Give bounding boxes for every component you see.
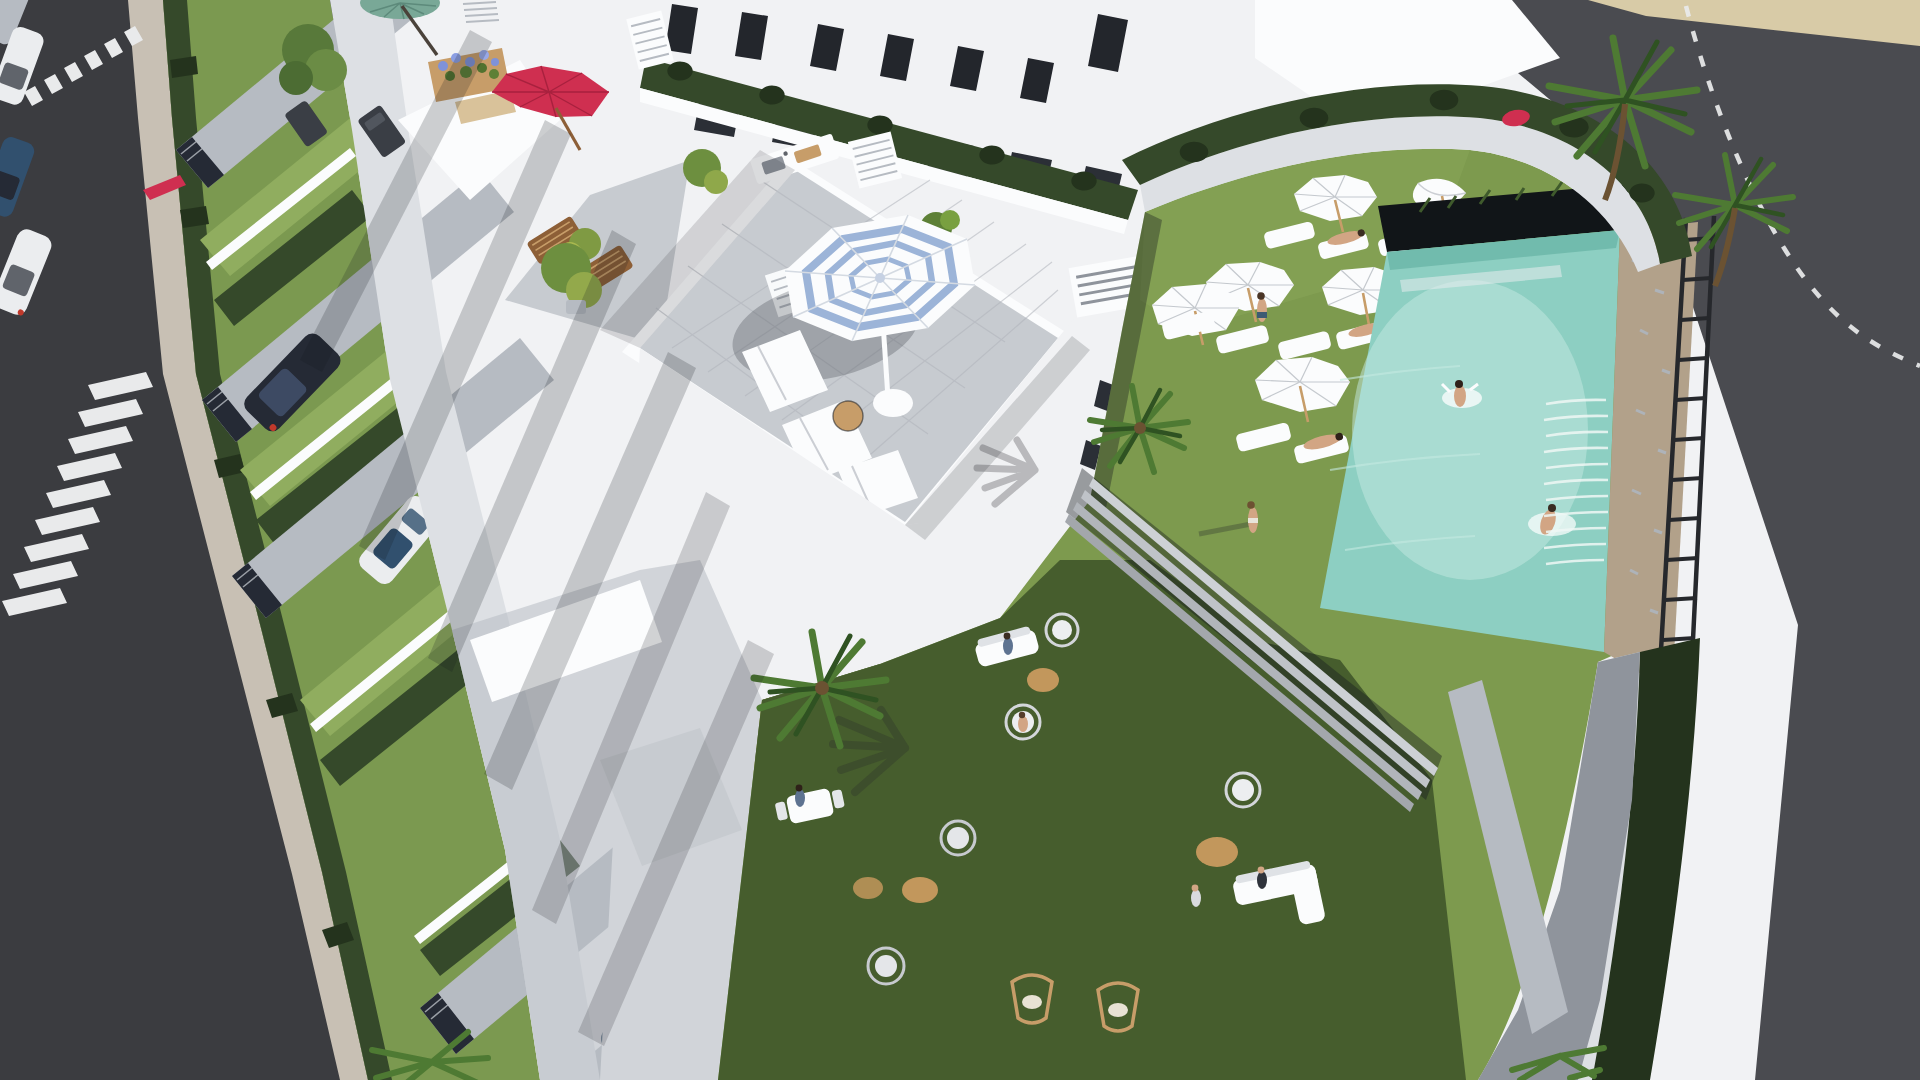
architectural-render (0, 0, 1920, 1080)
tree-foliage (279, 61, 313, 95)
swing-seat (1108, 1003, 1128, 1017)
parasol-cap (875, 273, 885, 283)
palm-crown (1134, 422, 1146, 434)
jute-rug (853, 877, 883, 899)
jute-rug (902, 877, 938, 903)
render-canvas (0, 0, 1920, 1080)
bikini (1248, 518, 1258, 523)
round-table (873, 389, 913, 417)
palm-crown (815, 681, 829, 695)
plant (940, 210, 960, 230)
jute-rug (1027, 668, 1059, 692)
swing-seat (1022, 995, 1042, 1009)
jute-rug (1196, 837, 1238, 867)
swim-trunks (1257, 312, 1267, 318)
